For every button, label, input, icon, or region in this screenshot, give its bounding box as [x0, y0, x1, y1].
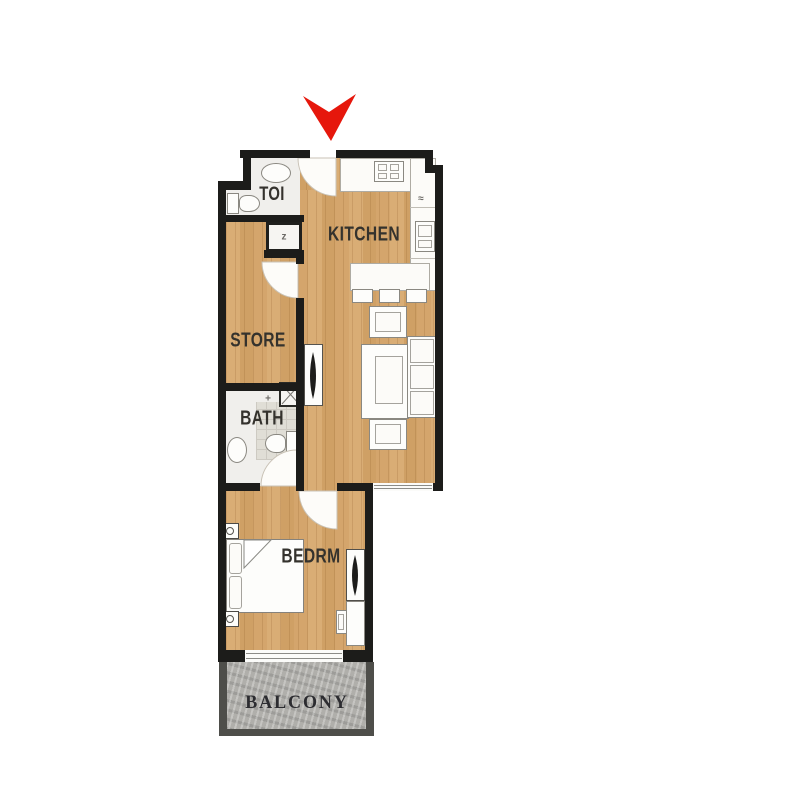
wall — [218, 188, 226, 656]
bed-blanket-fold — [244, 540, 271, 568]
balcony-wall — [219, 662, 227, 736]
label-bath: BATH — [240, 408, 284, 431]
wall — [218, 483, 260, 491]
label-kitchen: KITCHEN — [328, 224, 400, 247]
door-arc-bedroom — [299, 491, 337, 529]
hall-cabinet-handle-icon — [310, 352, 316, 399]
balcony-window — [245, 650, 343, 662]
entrance-arrow-icon — [303, 94, 356, 141]
balcony-wall — [366, 662, 374, 736]
label-balcony: BALCONY — [245, 692, 349, 714]
wall — [435, 170, 443, 491]
wall — [336, 150, 433, 158]
window-line — [374, 488, 432, 489]
wall — [218, 383, 304, 391]
label-toi: TOI — [259, 184, 285, 206]
wall — [226, 215, 304, 222]
label-store: STORE — [230, 330, 285, 353]
door-arc-entrance — [298, 158, 336, 196]
overlay-graphics — [0, 0, 800, 800]
wall — [433, 483, 443, 491]
wall — [296, 256, 304, 264]
wall — [296, 298, 304, 491]
window-line — [246, 658, 342, 659]
wardrobe-handle-icon — [352, 555, 358, 596]
floor-plan: ≈ z + — [0, 0, 800, 800]
label-bedrm: BEDRM — [281, 546, 340, 569]
door-arc-bath — [261, 450, 297, 486]
wall — [365, 483, 373, 656]
wall — [343, 650, 373, 662]
window-line — [374, 485, 432, 486]
wall — [218, 650, 245, 662]
wall — [296, 483, 304, 491]
balcony-wall — [219, 729, 374, 736]
window-line — [246, 653, 342, 654]
door-arc-store — [262, 262, 298, 298]
